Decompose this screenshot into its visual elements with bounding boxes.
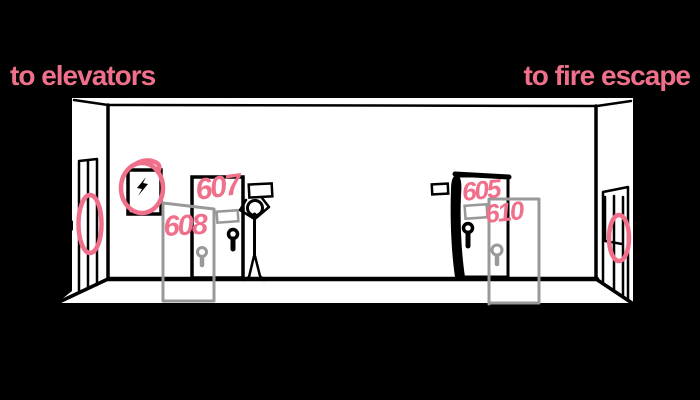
wall-sign-plate-607 bbox=[249, 183, 273, 197]
wall-sign-plate-605 bbox=[432, 184, 449, 195]
room-number-608: 608 bbox=[163, 209, 210, 243]
door-607-name-plate bbox=[217, 210, 239, 222]
room-number-607: 607 bbox=[193, 168, 245, 207]
hallway-scene: 607 608 605 610 bbox=[0, 0, 700, 400]
elevator-door-handle bbox=[66, 220, 73, 231]
room-number-610: 610 bbox=[483, 195, 526, 229]
